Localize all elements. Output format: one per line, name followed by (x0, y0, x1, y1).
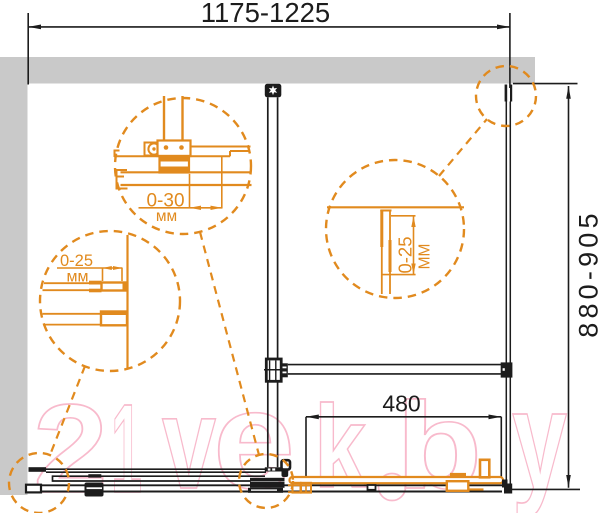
svg-text:0-25: 0-25 (395, 236, 416, 273)
svg-text:мм: мм (67, 269, 89, 286)
svg-text:мм: мм (156, 208, 177, 225)
svg-text:y: y (512, 361, 567, 513)
svg-text:0-25: 0-25 (60, 252, 93, 270)
svg-text:1: 1 (111, 378, 142, 513)
svg-text:1175-1225: 1175-1225 (201, 0, 330, 28)
svg-text:ММ: ММ (417, 244, 434, 270)
svg-text:480: 480 (382, 391, 420, 417)
svg-text:880-905: 880-905 (574, 209, 600, 338)
